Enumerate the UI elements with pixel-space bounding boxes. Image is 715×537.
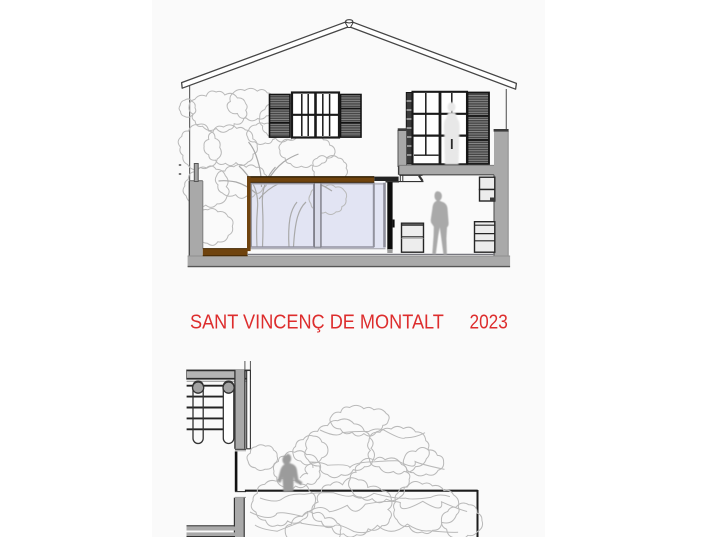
svg-text:SANT VINCENÇ DE MONTALT: SANT VINCENÇ DE MONTALT xyxy=(190,311,444,334)
svg-text:2023: 2023 xyxy=(470,311,508,334)
